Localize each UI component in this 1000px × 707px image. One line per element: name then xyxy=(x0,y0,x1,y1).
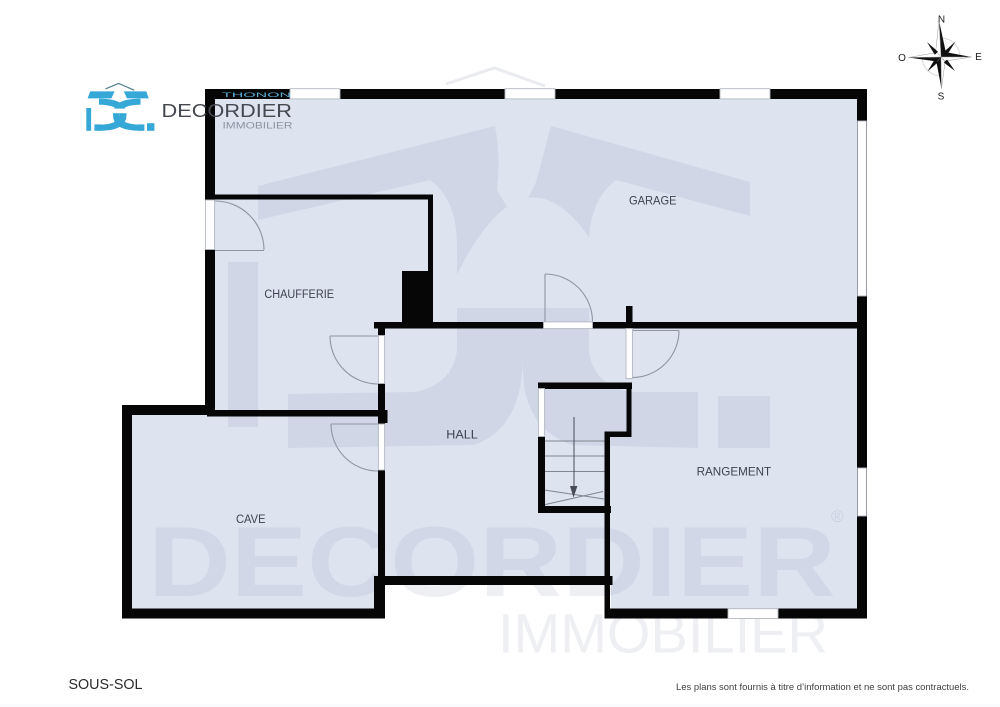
svg-text:E: E xyxy=(975,52,982,63)
svg-text:Les plans sont fournis à titre: Les plans sont fournis à titre d’informa… xyxy=(676,682,969,692)
svg-text:THONON: THONON xyxy=(222,92,292,99)
svg-text:O: O xyxy=(898,53,906,64)
svg-text:HALL: HALL xyxy=(446,427,478,441)
svg-text:RANGEMENT: RANGEMENT xyxy=(697,464,772,478)
svg-text:N: N xyxy=(938,14,945,25)
svg-text:IMMOBILIER: IMMOBILIER xyxy=(223,121,293,132)
svg-text:DECORDIER: DECORDIER xyxy=(162,100,293,121)
svg-text:CHAUFFERIE: CHAUFFERIE xyxy=(264,287,334,301)
svg-text:®: ® xyxy=(831,507,844,526)
svg-text:GARAGE: GARAGE xyxy=(629,193,677,207)
svg-text:S: S xyxy=(938,92,945,103)
svg-text:CAVE: CAVE xyxy=(236,512,266,526)
svg-text:SOUS-SOL: SOUS-SOL xyxy=(69,676,143,693)
